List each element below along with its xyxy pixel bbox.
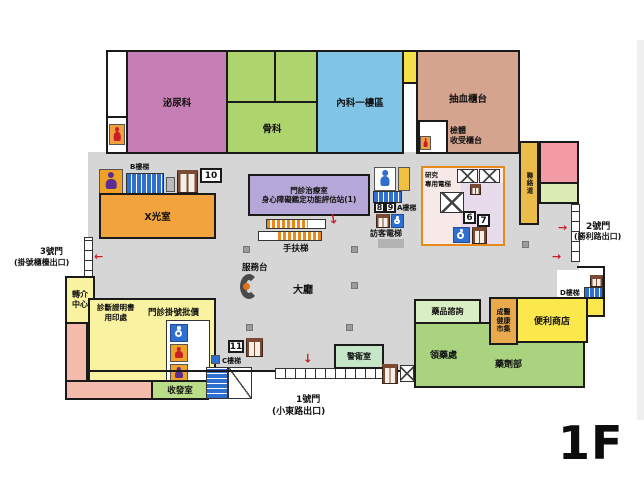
room-green-b	[274, 50, 318, 103]
research-elevator-label: 研究 專用電梯	[425, 171, 451, 189]
elevator-number-9: 9	[385, 202, 396, 213]
elevator-number-11: 11	[228, 340, 244, 353]
gate3-name: 3號門	[40, 245, 63, 257]
visitor-elevator-pillar	[378, 239, 404, 248]
pillar	[522, 241, 529, 248]
room-blood-draw-label: 抽血櫃台	[449, 91, 487, 105]
elevator-icon-c	[246, 338, 263, 357]
room-clinic-treatment: 門診治療室 身心障礙鑑定功能評估站(1)	[248, 174, 370, 216]
mini-icon-c	[211, 355, 220, 364]
exit-person-icon	[109, 124, 125, 145]
wall-gate2-h	[577, 266, 605, 268]
room-orthopedics: 骨科	[226, 101, 318, 154]
registration-label: 門診掛號批價	[148, 306, 199, 318]
mailroom-label: 收發室	[167, 384, 193, 396]
room-mailroom: 收發室	[151, 380, 209, 400]
gate3-arrow-icon: ←	[94, 251, 103, 262]
room-guard: 警衛室	[334, 344, 384, 369]
gate2-arrow-1-icon: →	[558, 222, 567, 233]
gate3-exit: (掛號櫃檯出口)	[14, 257, 69, 268]
room-health-market: 成醫 健康 市集	[489, 297, 518, 345]
pillar	[346, 324, 353, 331]
gate1-exit: (小東路出口)	[272, 404, 325, 417]
room-xray: X光室	[99, 193, 216, 239]
pillar	[351, 246, 358, 253]
mini-icon-a	[398, 167, 410, 191]
service-desk-label: 服務台	[242, 261, 268, 273]
floor-plan-1f: 泌尿科 骨科 內科一樓區 抽血櫃台 檢體 收受櫃台 B樓梯 10 X光室 門診治…	[0, 0, 644, 483]
accessible-icon-research	[453, 227, 470, 243]
specimen-person-icon	[420, 136, 431, 150]
gate3-door-track	[84, 237, 93, 281]
room-urology-label: 泌尿科	[163, 95, 192, 109]
room-internal-medicine: 內科一樓區	[316, 50, 404, 154]
elevator-shaft-icon-1	[457, 169, 478, 183]
visitor-elevator-label: 訪客電梯	[370, 228, 402, 239]
accessible-restroom-icon	[170, 324, 188, 342]
drug-consult-label: 藥品諮詢	[432, 306, 464, 317]
pillar	[246, 324, 253, 331]
link-corridor-label: 聯絡道	[524, 172, 534, 195]
edge-strip	[637, 40, 644, 420]
mini-icon-b	[166, 177, 175, 192]
medication-pickup-label: 領藥處	[430, 348, 457, 361]
escalator-lower	[258, 231, 322, 241]
elevator-shaft-icon-2	[479, 169, 500, 183]
room-drug-consult: 藥品諮詢	[414, 299, 481, 324]
room-clinic-label: 門診治療室 身心障礙鑑定功能評估站(1)	[262, 186, 357, 205]
lobby-label: 大廳	[293, 281, 313, 296]
elevator-number-6: 6	[463, 211, 476, 224]
pillar	[243, 246, 250, 253]
room-lightgreen	[539, 182, 579, 204]
certificate-stamp-label: 診斷證明書 用印處	[97, 303, 135, 323]
guard-label: 警衛室	[347, 351, 371, 362]
gate2-exit: (勝利路出口)	[574, 231, 621, 242]
room-green-a	[226, 50, 276, 103]
gate1-door-track	[275, 368, 383, 379]
pink-zone-horizontal	[65, 380, 153, 400]
elevator-icon-b	[177, 170, 198, 193]
room-store: 便利商店	[516, 297, 588, 343]
room-orthopedics-label: 骨科	[262, 121, 281, 135]
service-desk-dot-icon	[243, 283, 250, 290]
stairs-c-label: C樓梯	[222, 356, 241, 366]
room-urology: 泌尿科	[126, 50, 228, 154]
elevator-number-10: 10	[200, 168, 222, 183]
elevator-number-8: 8	[374, 202, 385, 213]
gate2-arrow-2-icon: →	[552, 251, 561, 262]
escalator-upper	[266, 219, 326, 229]
accessible-icon-a	[391, 214, 404, 228]
store-label: 便利商店	[534, 314, 570, 327]
health-market-label: 成醫 健康 市集	[497, 308, 511, 334]
elevator-shaft-icon-3	[440, 192, 464, 213]
elevator-icon-research	[470, 184, 481, 195]
elevator-icon-gate1	[382, 364, 398, 384]
west-room-divider	[108, 116, 126, 118]
restroom-male-icon-b	[99, 169, 123, 194]
pharmacy-label: 藥劑部	[495, 357, 522, 370]
restroom-male-icon-a	[374, 167, 396, 191]
stairs-b	[126, 173, 164, 194]
gate1-arrow-icon: →	[302, 353, 314, 363]
elevator-icon-d	[590, 275, 603, 287]
stairs-a-label: A樓梯	[397, 203, 416, 213]
referral-center-label: 轉介 中心	[72, 290, 88, 310]
room-pink	[539, 141, 579, 184]
elevator-number-7: 7	[477, 214, 490, 227]
elevator-shaft-icon-gate1	[400, 365, 414, 382]
specimen-label: 檢體 收受櫃台	[450, 126, 482, 147]
stairs-b-label: B樓梯	[130, 162, 149, 172]
elevator-icon-research-2	[472, 227, 487, 244]
restroom-female-icon	[170, 344, 188, 362]
pillar	[351, 282, 358, 289]
link-corridor: 聯絡道	[519, 141, 539, 225]
escalator-label: 手扶梯	[283, 242, 309, 254]
elevator-icon-a	[376, 214, 390, 228]
room-internal-label: 內科一樓區	[336, 95, 384, 109]
room-xray-label: X光室	[144, 209, 170, 223]
floor-label: 1F	[558, 416, 623, 470]
